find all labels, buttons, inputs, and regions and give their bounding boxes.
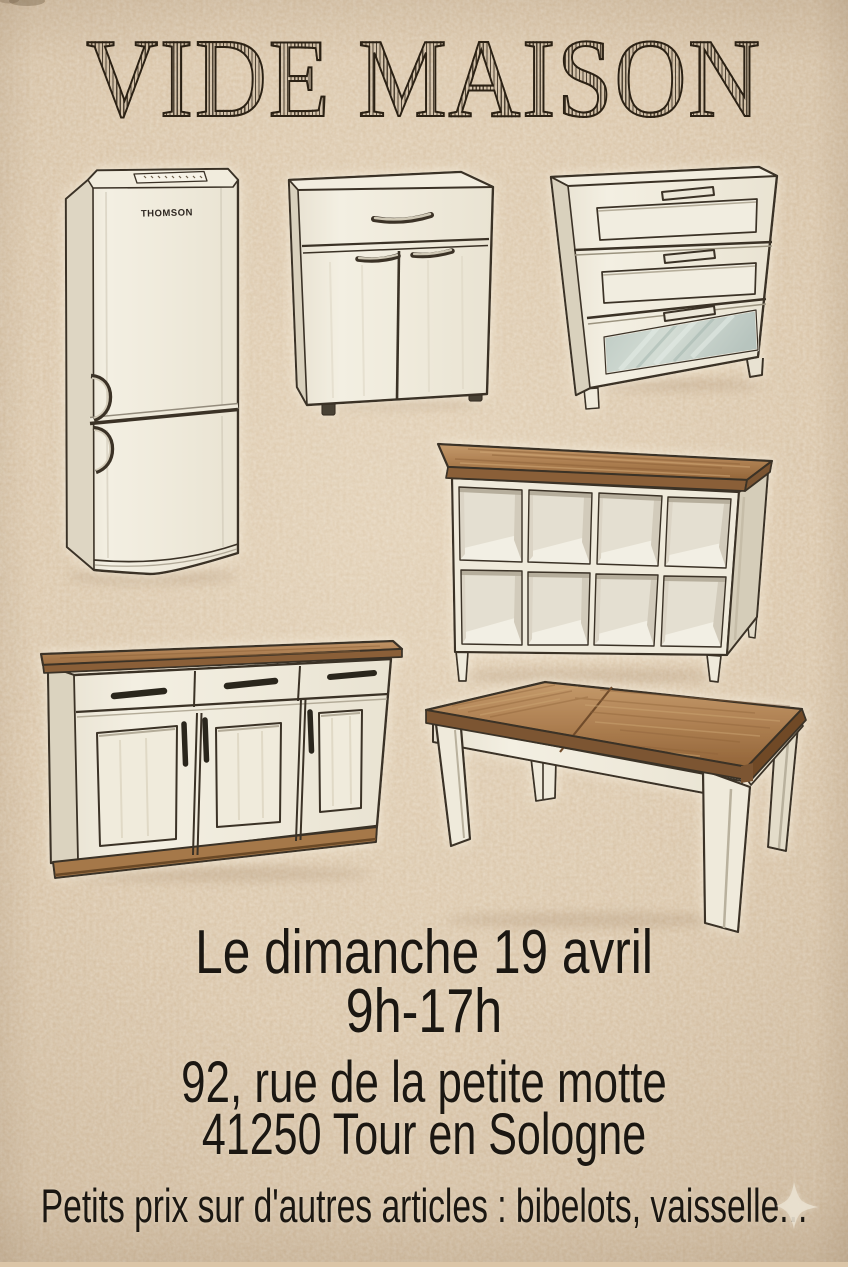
svg-text:THOMSON: THOMSON bbox=[141, 207, 193, 219]
